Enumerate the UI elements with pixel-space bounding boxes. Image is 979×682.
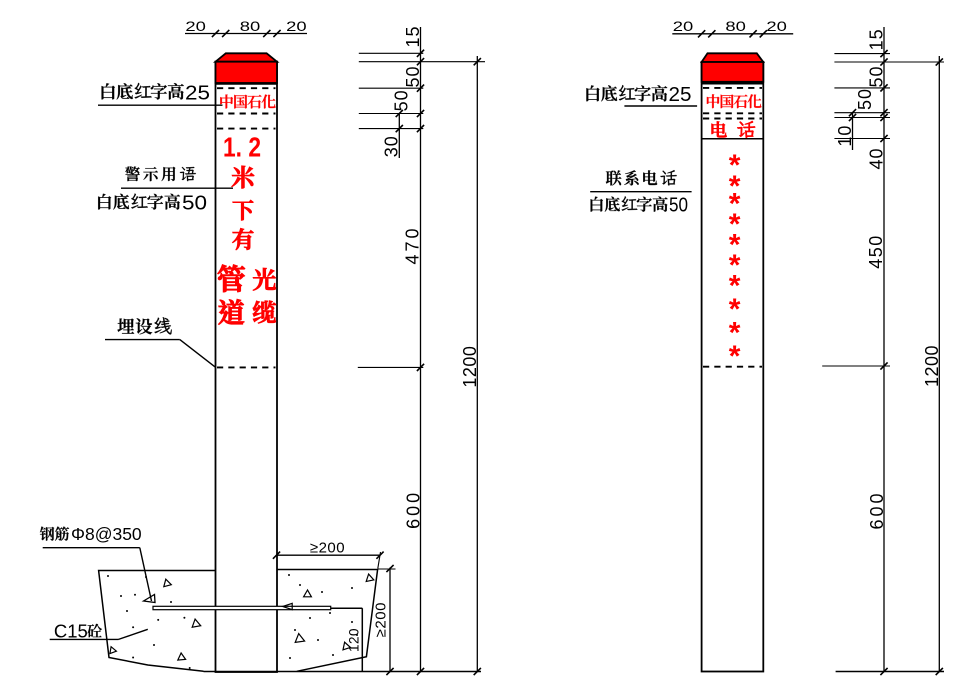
svg-text:20: 20 bbox=[673, 18, 694, 34]
svg-text:1200: 1200 bbox=[460, 346, 480, 388]
svg-text:C15: C15 bbox=[54, 621, 88, 642]
svg-text:≥200: ≥200 bbox=[310, 540, 345, 557]
svg-text:15: 15 bbox=[403, 25, 423, 47]
svg-text:25: 25 bbox=[669, 84, 692, 106]
svg-text:*: * bbox=[729, 340, 741, 373]
svg-text:1200: 1200 bbox=[922, 345, 942, 387]
svg-text:15: 15 bbox=[867, 28, 887, 50]
svg-text:Φ8@350: Φ8@350 bbox=[71, 524, 142, 544]
svg-text:600: 600 bbox=[404, 490, 424, 529]
svg-text:20: 20 bbox=[766, 18, 787, 34]
svg-text:20: 20 bbox=[286, 18, 307, 34]
svg-text:20: 20 bbox=[185, 18, 206, 34]
svg-text:80: 80 bbox=[240, 18, 261, 34]
svg-text:40: 40 bbox=[867, 147, 887, 169]
svg-text:25: 25 bbox=[185, 82, 210, 104]
svg-text:≥200: ≥200 bbox=[373, 602, 390, 637]
svg-text:50: 50 bbox=[669, 195, 688, 217]
svg-text:450: 450 bbox=[866, 234, 886, 269]
svg-text:50: 50 bbox=[855, 88, 875, 110]
svg-text:50: 50 bbox=[182, 192, 207, 214]
svg-text:600: 600 bbox=[867, 490, 887, 529]
svg-text:470: 470 bbox=[403, 225, 423, 264]
svg-text:80: 80 bbox=[725, 18, 746, 34]
svg-text:50: 50 bbox=[392, 89, 412, 111]
svg-text:120: 120 bbox=[347, 628, 362, 652]
svg-text:10: 10 bbox=[835, 125, 855, 147]
svg-text:30: 30 bbox=[381, 135, 401, 157]
svg-text:50: 50 bbox=[867, 65, 887, 87]
svg-text:1. 2: 1. 2 bbox=[223, 131, 261, 162]
svg-text:50: 50 bbox=[403, 65, 423, 87]
